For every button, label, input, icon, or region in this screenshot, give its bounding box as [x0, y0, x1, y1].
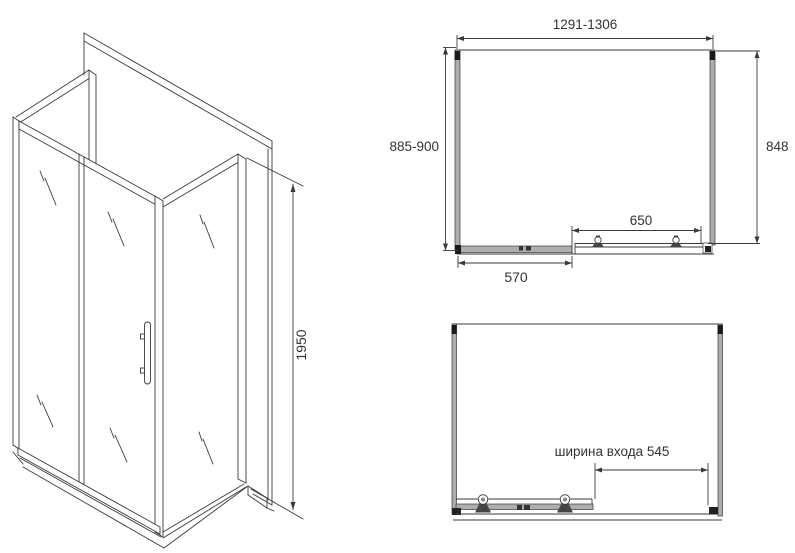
- technical-drawing-canvas: 1950: [0, 0, 795, 553]
- side-depth-label: 885-900: [389, 139, 439, 154]
- inner-depth-dimension: 848: [708, 51, 789, 244]
- top-view-right-panel: [710, 50, 716, 245]
- side-depth-dimension: 885-900: [389, 48, 459, 251]
- front-view-door-assembly: [452, 499, 722, 520]
- door-divider: [79, 154, 84, 486]
- front-view-left-panel: [452, 324, 457, 514]
- front-view-right-panel: [718, 324, 723, 516]
- sliding-door-dimension: 650: [572, 213, 701, 243]
- entrance-width-dimension: ширина входа 545: [555, 444, 708, 505]
- front-right-post: [155, 196, 163, 537]
- door-handle[interactable]: [141, 322, 151, 384]
- glass-reflection-marks: [37, 171, 214, 464]
- shower-tray: [13, 448, 274, 548]
- overall-width-dimension: 1291-1306: [457, 17, 713, 49]
- top-view: 1291-1306 885-900 848 650: [389, 17, 788, 285]
- top-view-left-panel: [455, 50, 461, 250]
- inner-depth-label: 848: [766, 139, 789, 154]
- sliding-door-label: 650: [630, 213, 653, 228]
- isometric-view: 1950: [13, 33, 309, 548]
- right-side-panel-frame: [163, 154, 246, 532]
- entrance-width-label: ширина входа 545: [555, 444, 670, 459]
- height-dimension-label: 1950: [293, 329, 309, 360]
- height-dimension: 1950: [247, 158, 309, 519]
- front-view: ширина входа 545: [452, 324, 723, 520]
- overall-width-label: 1291-1306: [553, 17, 618, 32]
- fixed-panel-label: 570: [504, 269, 528, 285]
- fixed-panel-dimension: 570: [458, 256, 572, 285]
- front-left-post: [13, 117, 19, 449]
- top-view-rollers: [592, 236, 683, 248]
